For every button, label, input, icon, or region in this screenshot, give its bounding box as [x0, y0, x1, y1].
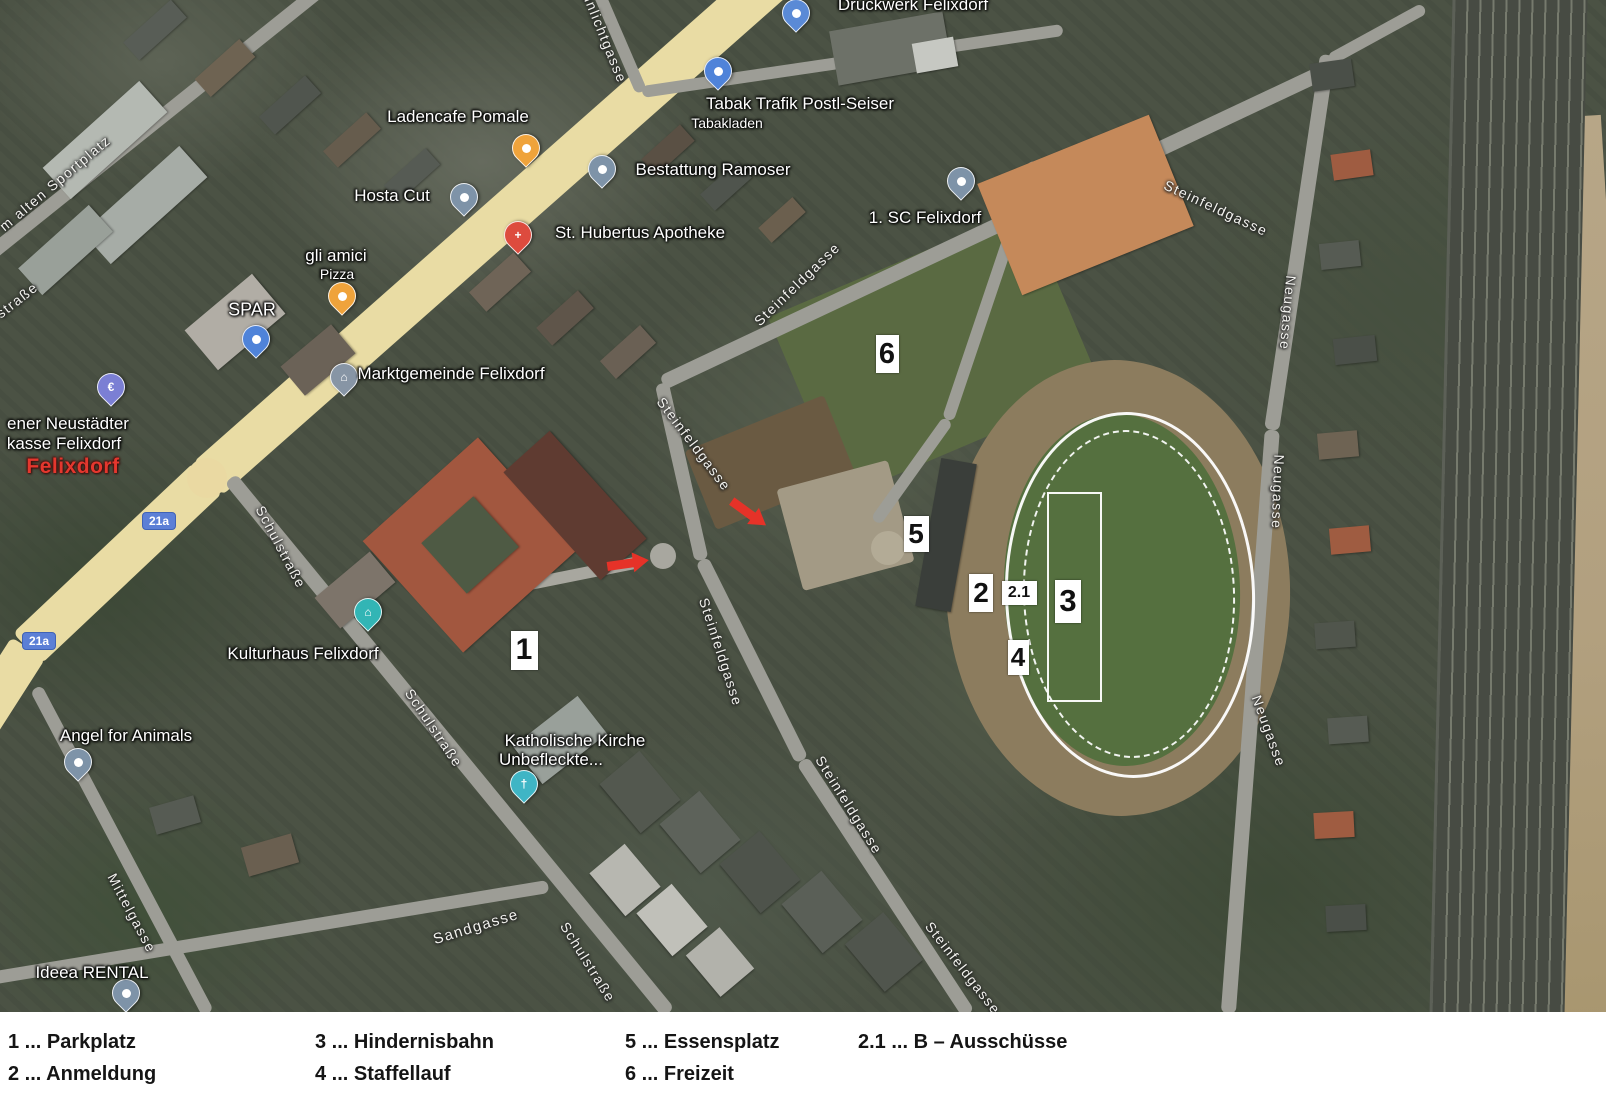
gli-amici-icon	[329, 283, 355, 309]
red-arrow-west	[606, 550, 650, 576]
angel-for-animals-label: Angel for Animals	[60, 726, 192, 746]
road-junction-pad-2	[650, 543, 676, 569]
building-30	[912, 37, 959, 74]
building-33	[1309, 58, 1354, 92]
station-marker-6: 6	[876, 335, 899, 373]
kirche-label-line2: Unbefleckte...	[499, 750, 603, 770]
building-12	[600, 325, 656, 379]
bestattung-ramoser-label: Bestattung Ramoser	[636, 160, 791, 180]
ladencafe-pomale-icon	[513, 135, 539, 161]
kirche-icon: †	[511, 771, 537, 797]
building-38	[1329, 525, 1371, 554]
building-11	[536, 290, 594, 345]
druckwerk-felixdorf-label: Druckwerk Felixdorf	[838, 0, 988, 15]
legend-item-2-1: 3 ... Hindernisbahn	[315, 1026, 494, 1058]
building-36	[1333, 335, 1377, 365]
sparkasse-euro-icon: €	[98, 374, 124, 400]
station-marker-3: 3	[1055, 580, 1081, 623]
station-marker-5: 5	[904, 516, 929, 552]
legend-item-1-2: 2 ... Anmeldung	[8, 1058, 156, 1090]
st-hubertus-apotheke-label: St. Hubertus Apotheke	[555, 223, 725, 243]
railway-tracks	[1429, 0, 1588, 1012]
building-43	[241, 833, 299, 876]
kirche-label-line1: Katholische Kirche	[505, 731, 646, 751]
tabak-trafik-label: Tabak Trafik Postl-Seiser	[706, 94, 894, 114]
red-arrow-west-body	[607, 558, 635, 571]
sparkasse-euro-pin[interactable]: €	[91, 367, 131, 407]
spar-label: SPAR	[228, 300, 276, 321]
sc-felixdorf-label: 1. SC Felixdorf	[869, 208, 981, 228]
druckwerk-felixdorf-icon	[783, 0, 809, 25]
legend-column-2: 3 ... Hindernisbahn4 ... Staffellauf	[315, 1026, 494, 1090]
street-sandgasse: Sandgasse	[431, 906, 521, 948]
street-schulstrasse-2: Schulstraße	[402, 686, 466, 771]
tabak-trafik-icon	[705, 58, 731, 84]
marktgemeinde-label: Marktgemeinde Felixdorf	[357, 364, 544, 384]
road-badge-21a-0: 21a	[142, 512, 176, 530]
kulturhaus-label: Kulturhaus Felixdorf	[227, 644, 378, 664]
building-44	[149, 795, 201, 835]
sc-felixdorf-pin[interactable]	[941, 161, 981, 201]
road-segment-13	[0, 0, 336, 267]
road-junction-pad-0	[187, 458, 227, 498]
map-legend: 1 ... Parkplatz2 ... Anmeldung3 ... Hind…	[0, 1012, 1606, 1106]
st-hubertus-apotheke-icon: +	[505, 222, 531, 248]
hosta-cut-icon	[451, 184, 477, 210]
street-strasse-partial: straße	[0, 279, 41, 322]
sc-felixdorf-icon	[948, 168, 974, 194]
legend-column-4: 2.1 ... B – Ausschüsse	[858, 1026, 1067, 1058]
ladencafe-pomale-label: Ladencafe Pomale	[387, 107, 529, 127]
building-39	[1314, 621, 1356, 650]
gli-amici-label: gli amici	[305, 246, 366, 266]
red-arrow-west-head	[632, 550, 651, 572]
building-37	[1317, 430, 1359, 459]
legend-item-1-1: 1 ... Parkplatz	[8, 1026, 156, 1058]
building-34	[1330, 149, 1373, 180]
gli-amici-sublabel: Pizza	[320, 266, 354, 282]
building-8	[185, 274, 286, 370]
tabak-trafik-sublabel: Tabakladen	[691, 115, 763, 131]
station-marker-4: 4	[1008, 640, 1029, 675]
kulturhaus-icon: ⌂	[355, 599, 381, 625]
legend-item-3-2: 6 ... Freizeit	[625, 1058, 780, 1090]
legend-item-2-2: 4 ... Staffellauf	[315, 1058, 494, 1090]
satellite-map: +⌂€⌂†Ladencafe PomaleHosta CutBestattung…	[0, 0, 1606, 1012]
road-segment-8	[696, 557, 809, 763]
street-neugasse-2: Neugasse	[1269, 454, 1288, 530]
ideea-rental-icon	[113, 980, 139, 1006]
station-marker-2.1: 2.1	[1002, 581, 1037, 605]
building-41	[1313, 811, 1354, 839]
road-segment-18	[1327, 3, 1428, 66]
building-1	[195, 39, 256, 97]
street-schulstrasse-1: Schulstraße	[253, 503, 310, 591]
legend-item-4-1: 2.1 ... B – Ausschüsse	[858, 1026, 1067, 1058]
building-25	[686, 927, 754, 997]
bestattung-ramoser-icon	[589, 156, 615, 182]
marktgemeinde-icon: ⌂	[331, 364, 357, 390]
sparkasse-label-line2: kasse Felixdorf	[7, 434, 121, 454]
building-42	[1325, 904, 1366, 932]
building-0	[123, 0, 187, 60]
event-map-page: +⌂€⌂†Ladencafe PomaleHosta CutBestattung…	[0, 0, 1606, 1106]
angel-for-animals-icon	[65, 749, 91, 775]
building-2	[259, 75, 321, 134]
street-neugasse-1: Neugasse	[1277, 275, 1299, 351]
road-segment-2	[0, 637, 45, 781]
station-marker-2: 2	[969, 574, 993, 612]
hosta-cut-label: Hosta Cut	[354, 186, 430, 206]
building-28	[758, 197, 806, 243]
road-badge-21a-1: 21a	[22, 632, 56, 650]
building-3	[323, 112, 381, 167]
sparkasse-label-line1: ener Neustädter	[7, 414, 129, 434]
town-label-felixdorf: Felixdorf	[26, 455, 119, 479]
legend-column-1: 1 ... Parkplatz2 ... Anmeldung	[8, 1026, 156, 1090]
legend-column-3: 5 ... Essensplatz6 ... Freizeit	[625, 1026, 780, 1090]
building-35	[1319, 240, 1361, 270]
spar-icon	[243, 326, 269, 352]
building-40	[1327, 716, 1369, 745]
ideea-rental-label: Ideea RENTAL	[35, 963, 148, 983]
druckwerk-felixdorf-pin[interactable]	[776, 0, 816, 32]
road-junction-pad-1	[871, 531, 905, 565]
station-marker-1: 1	[511, 631, 538, 670]
legend-item-3-1: 5 ... Essensplatz	[625, 1026, 780, 1058]
